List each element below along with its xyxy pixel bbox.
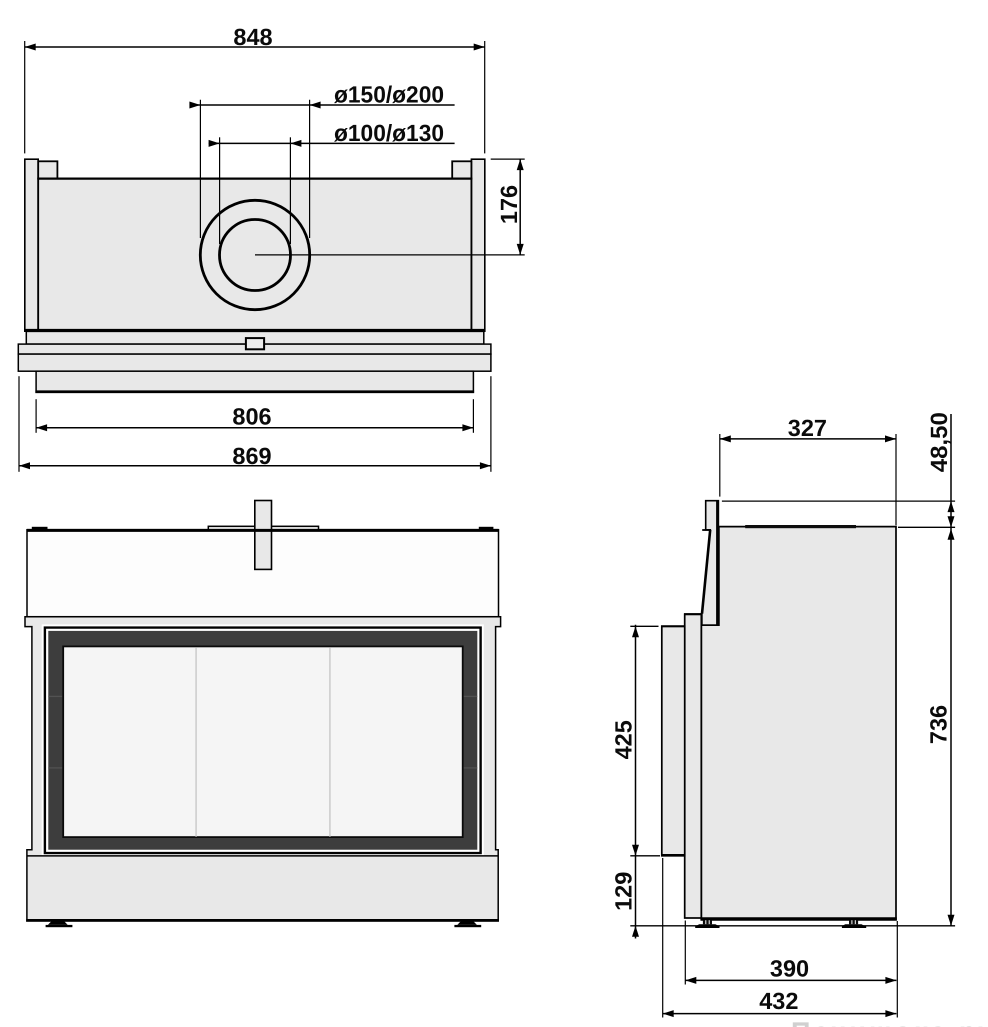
svg-text:129: 129 [611,872,637,911]
svg-text:390: 390 [770,956,809,982]
svg-text:425: 425 [611,720,637,759]
svg-text:48,50: 48,50 [926,412,952,472]
svg-text:ø150/ø200: ø150/ø200 [334,81,444,107]
svg-text:806: 806 [232,404,271,430]
svg-text:869: 869 [232,443,271,469]
svg-text:176: 176 [496,185,522,224]
svg-text:Печишока.ру: Печишока.ру [791,1017,988,1027]
svg-text:736: 736 [925,705,951,744]
svg-text:432: 432 [759,988,798,1014]
svg-text:848: 848 [233,24,272,50]
svg-text:327: 327 [788,415,827,441]
svg-text:ø100/ø130: ø100/ø130 [334,120,444,146]
